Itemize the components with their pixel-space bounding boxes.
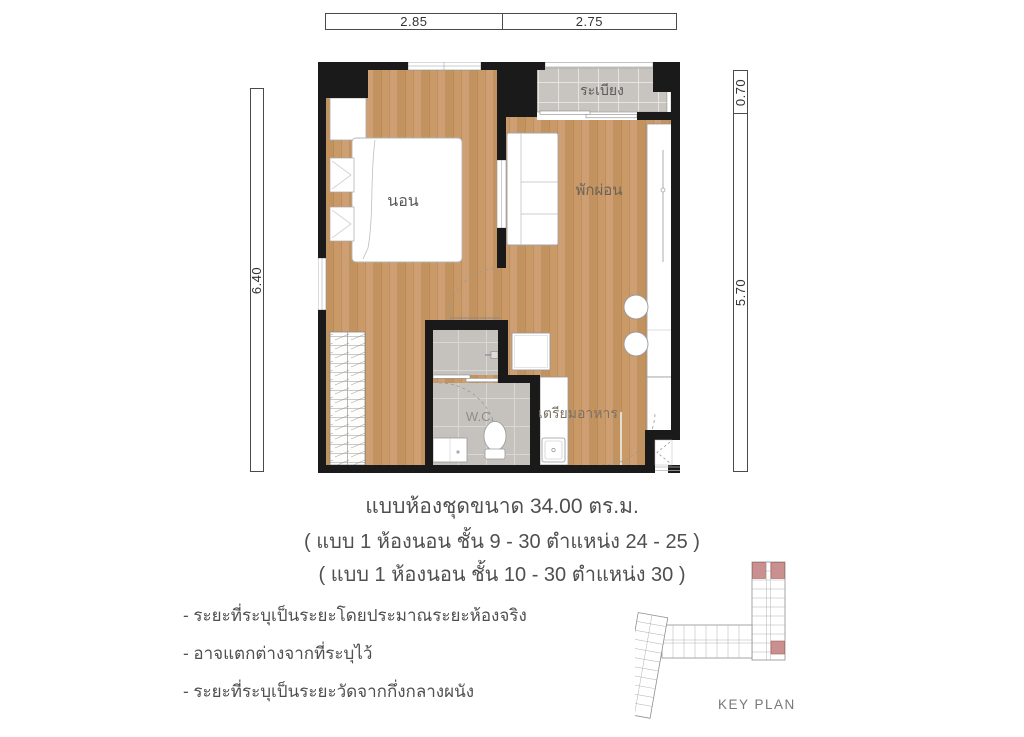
sofa xyxy=(507,133,558,245)
note-line: - ระยะที่ระบุเป็นระยะวัดจากกึ่งกลางผนัง xyxy=(183,678,527,705)
dimension-right-bottom: 5.70 xyxy=(733,279,748,306)
toilet xyxy=(484,422,506,460)
shower-floor xyxy=(433,330,498,375)
bedroom-label: นอน xyxy=(387,193,419,210)
floor-plan-drawing: ระเบียง นอน พักผ่อน W.C. เตรียมอาหาร xyxy=(318,62,680,473)
floor-plan-page: 2.85 2.75 6.40 0.70 5.70 xyxy=(0,0,1024,737)
dimension-bar-right: 0.70 5.70 xyxy=(733,70,748,472)
note-line: - อาจแตกต่างจากที่ระบุไว้ xyxy=(183,640,527,667)
wardrobe xyxy=(330,332,365,465)
bar-stool xyxy=(624,295,648,319)
dimension-bar-top: 2.85 2.75 xyxy=(325,13,677,30)
bedroom-window xyxy=(408,62,481,70)
dimension-left: 6.40 xyxy=(250,266,265,293)
partition-window xyxy=(497,160,506,228)
fridge xyxy=(512,333,550,370)
side-window xyxy=(318,258,326,310)
dimension-top-left: 2.85 xyxy=(326,14,503,29)
key-plan-angled-wing xyxy=(635,613,668,719)
balcony-label: ระเบียง xyxy=(580,82,624,98)
key-plan-label: KEY PLAN xyxy=(718,697,796,712)
key-plan: KEY PLAN xyxy=(635,552,895,722)
bathroom-sink xyxy=(433,438,467,462)
right-wardrobe xyxy=(647,124,672,377)
head-cabinet xyxy=(330,98,366,140)
dimension-bar-left: 6.40 xyxy=(250,88,264,472)
dimension-right-top: 0.70 xyxy=(733,78,748,105)
kitchen-sink xyxy=(542,438,565,462)
dimension-top-right: 2.75 xyxy=(503,14,676,29)
note-line: - ระยะที่ระบุเป็นระยะโดยประมาณระยะห้องจร… xyxy=(183,602,527,629)
unit-size-title: แบบห้องชุดขนาด 34.00 ตร.ม. xyxy=(252,490,752,523)
wc-label: W.C. xyxy=(466,409,494,424)
key-plan-horizontal-wing xyxy=(662,625,752,658)
bar-stool xyxy=(624,332,648,356)
kitchen-label: เตรียมอาหาร xyxy=(538,405,618,421)
disclaimer-notes: - ระยะที่ระบุเป็นระยะโดยประมาณระยะห้องจร… xyxy=(183,602,527,716)
shoe-cabinet xyxy=(647,377,672,433)
living-label: พักผ่อน xyxy=(575,182,622,199)
